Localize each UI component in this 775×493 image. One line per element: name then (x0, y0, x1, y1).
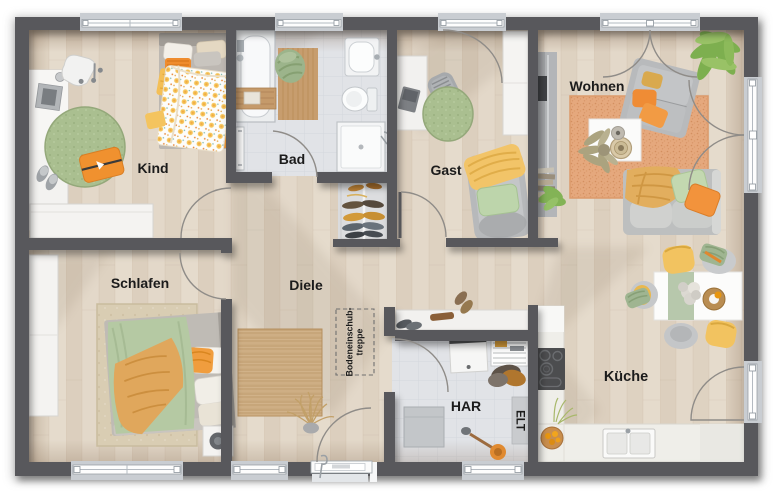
svg-text:Gast: Gast (430, 162, 461, 178)
svg-text:HAR: HAR (451, 398, 481, 414)
svg-text:Wohnen: Wohnen (570, 78, 625, 94)
svg-text:Küche: Küche (604, 369, 648, 385)
svg-text:Bad: Bad (279, 151, 305, 167)
svg-text:Diele: Diele (289, 277, 323, 293)
svg-text:Schlafen: Schlafen (111, 275, 169, 291)
svg-text:ELT: ELT (514, 410, 526, 431)
svg-text:Kind: Kind (137, 160, 168, 176)
